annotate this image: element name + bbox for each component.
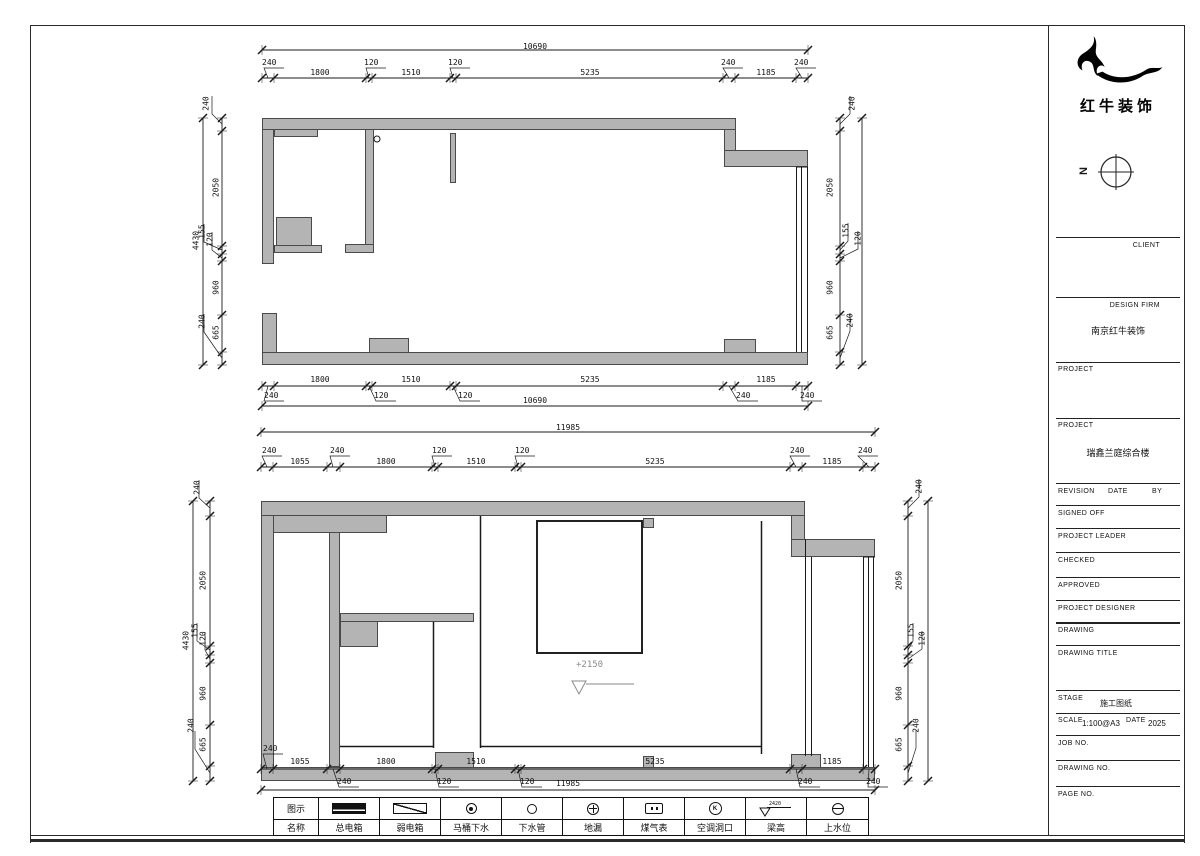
wall-pillar (369, 338, 409, 353)
legend-table: 图示 K 2420 名称 总电箱 弱电箱 马桶下水 下水管 地漏 煤气表 空调洞… (273, 797, 869, 836)
dim-label: 120 (374, 391, 388, 400)
project-value: 瑞鑫兰庭综合楼 (1056, 446, 1180, 459)
dim-label: 5235 (560, 68, 620, 77)
dim-label: 240 (798, 777, 812, 786)
dim-label: 1800 (290, 375, 350, 384)
dim-label: 240 (858, 446, 872, 455)
drawing-no-label: DRAWING NO. (1058, 765, 1110, 772)
ac-opening-icon: K (709, 802, 722, 815)
wall-segment (261, 515, 274, 781)
wall-segment (791, 539, 875, 557)
dim-label: 240 (846, 301, 855, 341)
gas-meter-icon (645, 803, 663, 814)
dim-label: 665 (199, 725, 208, 765)
ac-symbol-letter: K (713, 806, 717, 812)
dim-label: 120 (199, 619, 208, 659)
dim-label: 960 (895, 674, 904, 714)
dim-label: 120 (515, 446, 529, 455)
dim-label: 120 (918, 619, 927, 659)
drawing-label: DRAWING (1058, 627, 1094, 634)
dim-label: 120 (364, 58, 378, 67)
dim-label: 240 (848, 84, 857, 124)
dim-label: 1055 (270, 457, 330, 466)
legend-item-name: 空调洞口 (684, 819, 745, 835)
design-firm-value: 南京红牛装饰 (1056, 324, 1180, 337)
wall-partition (329, 532, 340, 767)
stage-value: 施工图纸 (1100, 698, 1132, 709)
signed-off-label: SIGNED OFF (1058, 510, 1105, 517)
toilet-drain-icon (466, 803, 477, 814)
level-annotation: +2150 (576, 660, 603, 670)
dim-label: 11985 (538, 423, 598, 432)
weak-current-box-icon (393, 803, 427, 814)
wall-pillar (724, 339, 756, 353)
dim-label: 240 (721, 58, 735, 67)
dim-label: 1510 (446, 757, 506, 766)
dim-label: 5235 (625, 757, 685, 766)
scale-label: SCALE (1058, 717, 1083, 724)
drawing-sheet: +2150 10690 240 120 120 240 240 1800 151… (0, 0, 1200, 856)
dim-label: 240 (915, 467, 924, 507)
wall-segment (274, 129, 318, 137)
dim-label: 240 (866, 777, 880, 786)
project-label-2: PROJECT (1058, 422, 1093, 429)
wall-segment (262, 118, 736, 130)
wall-segment (261, 515, 387, 533)
legend-header-symbol: 图示 (274, 798, 318, 819)
dim-label: 10690 (505, 396, 565, 405)
dim-label: 120 (854, 219, 863, 259)
project-label: PROJECT (1058, 366, 1093, 373)
dim-label: 665 (895, 725, 904, 765)
legend-item-name: 弱电箱 (379, 819, 440, 835)
legend-header-name: 名称 (274, 819, 318, 835)
dim-label: 4430 (182, 621, 191, 661)
dim-label: 5235 (625, 457, 685, 466)
drawing-title-label: DRAWING TITLE (1058, 650, 1118, 657)
dim-label: 240 (794, 58, 808, 67)
client-label: CLIENT (1056, 242, 1160, 249)
dim-label: 240 (187, 706, 196, 746)
wall-notch (643, 518, 654, 528)
dim-label: 240 (262, 58, 276, 67)
dim-label: 240 (736, 391, 750, 400)
dim-label: 11985 (538, 779, 598, 788)
date-label: DATE (1108, 488, 1128, 495)
dim-label: 1800 (356, 457, 416, 466)
wall-column (340, 621, 378, 647)
main-electric-box-icon (332, 803, 366, 814)
dim-label: 2050 (212, 168, 221, 208)
dim-label: 240 (337, 777, 351, 786)
dim-label: 240 (790, 446, 804, 455)
wall-partition (274, 245, 322, 253)
dim-label: 960 (826, 268, 835, 308)
wall-segment (724, 150, 808, 167)
dim-label: 120 (448, 58, 462, 67)
dim-label: 1185 (802, 757, 862, 766)
dim-label: 5235 (560, 375, 620, 384)
dim-label: 1185 (736, 68, 796, 77)
dim-label: 1185 (736, 375, 796, 384)
legend-item-name: 地漏 (562, 819, 623, 835)
floor-drain-icon (587, 803, 599, 815)
dim-label: 960 (199, 674, 208, 714)
wall-stub (450, 133, 456, 183)
wall-segment (262, 313, 277, 354)
legend-item-name: 总电箱 (318, 819, 379, 835)
dim-label: 120 (432, 446, 446, 455)
dim-label: 1800 (290, 68, 350, 77)
dim-label: 240 (262, 446, 276, 455)
approved-label: APPROVED (1058, 582, 1100, 589)
titleblock-divider (1048, 25, 1049, 835)
legend-item-name: 煤气表 (623, 819, 684, 835)
by-label: BY (1152, 488, 1162, 495)
wall-partition (345, 244, 374, 253)
legend-item-name: 马桶下水 (440, 819, 501, 835)
project-designer-label: PROJECT DESIGNER (1058, 605, 1135, 612)
dim-label: 120 (206, 220, 215, 260)
frame-left (30, 25, 31, 843)
dim-label: 120 (437, 777, 451, 786)
dim-label: 2050 (826, 168, 835, 208)
dim-label: 240 (264, 391, 278, 400)
dim-label: 1510 (381, 68, 441, 77)
revision-label: REVISION (1058, 488, 1095, 495)
dim-label: 10690 (505, 42, 565, 51)
wall-segment (262, 352, 808, 365)
dim-label: 1510 (381, 375, 441, 384)
stage-label: STAGE (1058, 695, 1083, 702)
dim-label: 240 (202, 84, 211, 124)
wall-column (276, 217, 312, 246)
dim-label: 240 (193, 468, 202, 508)
north-label: N (1078, 167, 1090, 175)
dim-label: 1800 (356, 757, 416, 766)
design-firm-label: DESIGN FIRM (1056, 302, 1160, 309)
dim-label: 2050 (199, 561, 208, 601)
legend-item-name: 上水位 (806, 819, 868, 835)
wall-segment (261, 501, 805, 516)
drain-pipe-icon (527, 804, 537, 814)
company-logo-icon (1063, 34, 1173, 96)
dim-label: 2050 (895, 561, 904, 601)
water-level-icon (832, 803, 844, 815)
company-name: 红牛装饰 (1052, 95, 1184, 116)
frame-top (30, 25, 1185, 26)
dim-label: 1185 (802, 457, 862, 466)
beam-height-icon: 2420 (759, 801, 793, 817)
dim-label: 665 (212, 313, 221, 353)
wall-segment (791, 515, 805, 540)
wall-segment (724, 129, 736, 151)
legend-item-name: 下水管 (501, 819, 562, 835)
wall-segment (262, 129, 274, 264)
dim-label: 240 (800, 391, 814, 400)
date-value: 2025 (1148, 719, 1166, 728)
page-no-label: PAGE NO. (1058, 791, 1095, 798)
date-label-2: DATE (1126, 717, 1146, 724)
frame-bottom-thick (30, 839, 1185, 842)
dim-label: 240 (912, 706, 921, 746)
frame-right (1184, 25, 1185, 843)
dim-label: 240 (263, 744, 277, 753)
ceiling-void-outline (536, 520, 643, 654)
dim-label: 665 (826, 313, 835, 353)
scale-value: 1:100@A3 (1082, 719, 1120, 728)
legend-item-name: 梁高 (745, 819, 806, 835)
north-arrow-icon (1090, 150, 1138, 194)
dim-label: 155 (842, 211, 851, 251)
checked-label: CHECKED (1058, 557, 1095, 564)
dim-label: 1510 (446, 457, 506, 466)
job-no-label: JOB NO. (1058, 740, 1089, 747)
dim-label: 155 (907, 611, 916, 651)
dim-label: 240 (198, 302, 207, 342)
wall-partition (365, 129, 374, 245)
dim-label: 960 (212, 268, 221, 308)
dim-label: 240 (330, 446, 344, 455)
dim-label: 120 (520, 777, 534, 786)
project-leader-label: PROJECT LEADER (1058, 533, 1126, 540)
dim-label: 1055 (270, 757, 330, 766)
dim-label: 120 (458, 391, 472, 400)
